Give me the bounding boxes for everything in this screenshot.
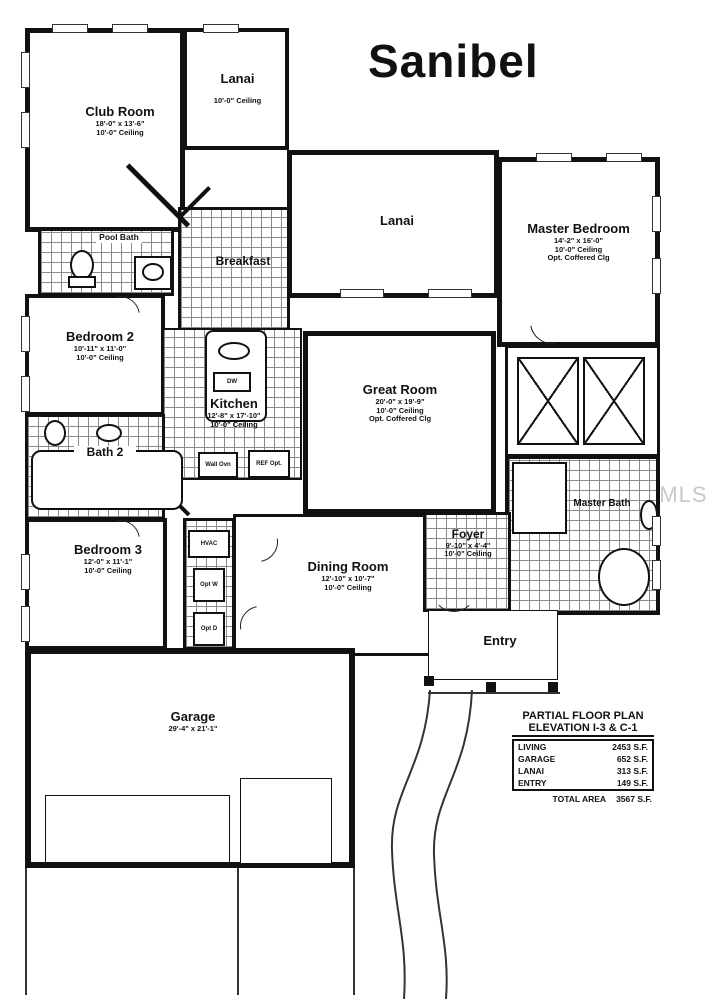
window-icon: [606, 153, 642, 162]
driveway-edge-line: [25, 868, 27, 995]
door-arc: [432, 568, 476, 612]
area-table: PARTIAL FLOOR PLAN ELEVATION I-3 & C-1 L…: [512, 710, 654, 804]
window-icon: [652, 560, 661, 590]
soaking-tub-icon: [598, 548, 650, 606]
sink-icon: [142, 263, 164, 281]
bath2-label: Bath 2: [74, 446, 136, 460]
garage-door-bay: [45, 795, 230, 863]
table-row: LANAI 313 S.F.: [514, 765, 652, 777]
floor-plan-page: Sanibel StellarMLS DW Wall Ovn REF Opt. …: [0, 0, 708, 999]
great-room-label: Great Room 20'-0" x 19'-9" 10'-0" Ceilin…: [335, 383, 465, 424]
table-row: ENTRY 149 S.F.: [514, 777, 652, 789]
window-icon: [203, 24, 239, 33]
dishwasher-icon: DW: [213, 372, 251, 392]
pool-bath-label: Pool Bath: [96, 233, 142, 243]
plan-title: Sanibel: [368, 34, 539, 88]
bedroom3-outline: [25, 518, 167, 650]
window-icon: [21, 606, 30, 642]
master-bath-label: Master Bath: [566, 498, 638, 510]
driveway-edge-line: [353, 868, 355, 995]
window-icon: [21, 376, 30, 412]
lanai-mid-label: Lanai: [342, 214, 452, 229]
toilet-tank-icon: [68, 276, 96, 288]
refrigerator-icon: REF Opt.: [248, 450, 290, 478]
sliding-door-icon: [428, 289, 472, 298]
window-icon: [21, 52, 30, 88]
window-icon: [21, 316, 30, 352]
lanai-top-label: Lanai 10'-0" Ceiling: [195, 72, 280, 106]
window-icon: [652, 258, 661, 294]
washer-icon: Opt W: [193, 568, 225, 602]
sink-icon: [218, 342, 250, 360]
entry-label: Entry: [468, 634, 532, 649]
wall-oven-icon: Wall Ovn: [198, 452, 238, 478]
hvac-icon: HVAC: [188, 530, 230, 558]
dining-room-label: Dining Room 12'-10" x 10'-7" 10'-0" Ceil…: [288, 560, 408, 592]
table-row: LIVING 2453 S.F.: [514, 741, 652, 753]
bedroom3-label: Bedroom 3 12'-0" x 11'-1" 10'-0" Ceiling: [48, 543, 168, 575]
shower-icon: [512, 462, 567, 534]
breakfast-outline: [178, 207, 290, 331]
sink-icon: [96, 424, 122, 442]
club-room-label: Club Room 18'-0" x 13'-6" 10'-0" Ceiling: [60, 105, 180, 137]
closet-bifold-icon: [583, 357, 645, 445]
area-table-total: TOTAL AREA 3567 S.F.: [512, 791, 654, 804]
window-icon: [112, 24, 148, 33]
sliding-door-icon: [340, 289, 384, 298]
window-icon: [52, 24, 88, 33]
area-table-title: PARTIAL FLOOR PLAN: [512, 710, 654, 722]
window-icon: [21, 554, 30, 590]
breakfast-label: Breakfast: [203, 255, 283, 269]
area-table-body: LIVING 2453 S.F. GARAGE 652 S.F. LANAI 3…: [512, 739, 654, 791]
kitchen-label: Kitchen 12'-8" x 17'-10" 10'-0" Ceiling: [188, 397, 280, 429]
window-icon: [536, 153, 572, 162]
foyer-label: Foyer 9'-10" x 4'-4" 10'-0" Ceiling: [434, 528, 502, 559]
master-bedroom-label: Master Bedroom 14'-2" x 16'-0" 10'-0" Ce…: [516, 222, 641, 263]
driveway-edge-line: [237, 868, 239, 995]
table-row: GARAGE 652 S.F.: [514, 753, 652, 765]
bedroom2-label: Bedroom 2 10'-11" x 11'-0" 10'-0" Ceilin…: [45, 330, 155, 362]
dryer-icon: Opt D: [193, 612, 225, 646]
toilet-icon: [44, 420, 66, 446]
garage-door-bay: [240, 778, 332, 864]
closet-bifold-icon: [517, 357, 579, 445]
window-icon: [652, 196, 661, 232]
window-icon: [21, 112, 30, 148]
window-icon: [652, 516, 661, 546]
garage-label: Garage 29'-4" x 21'-1": [138, 710, 248, 734]
area-table-subtitle: ELEVATION I-3 & C-1: [512, 722, 654, 737]
